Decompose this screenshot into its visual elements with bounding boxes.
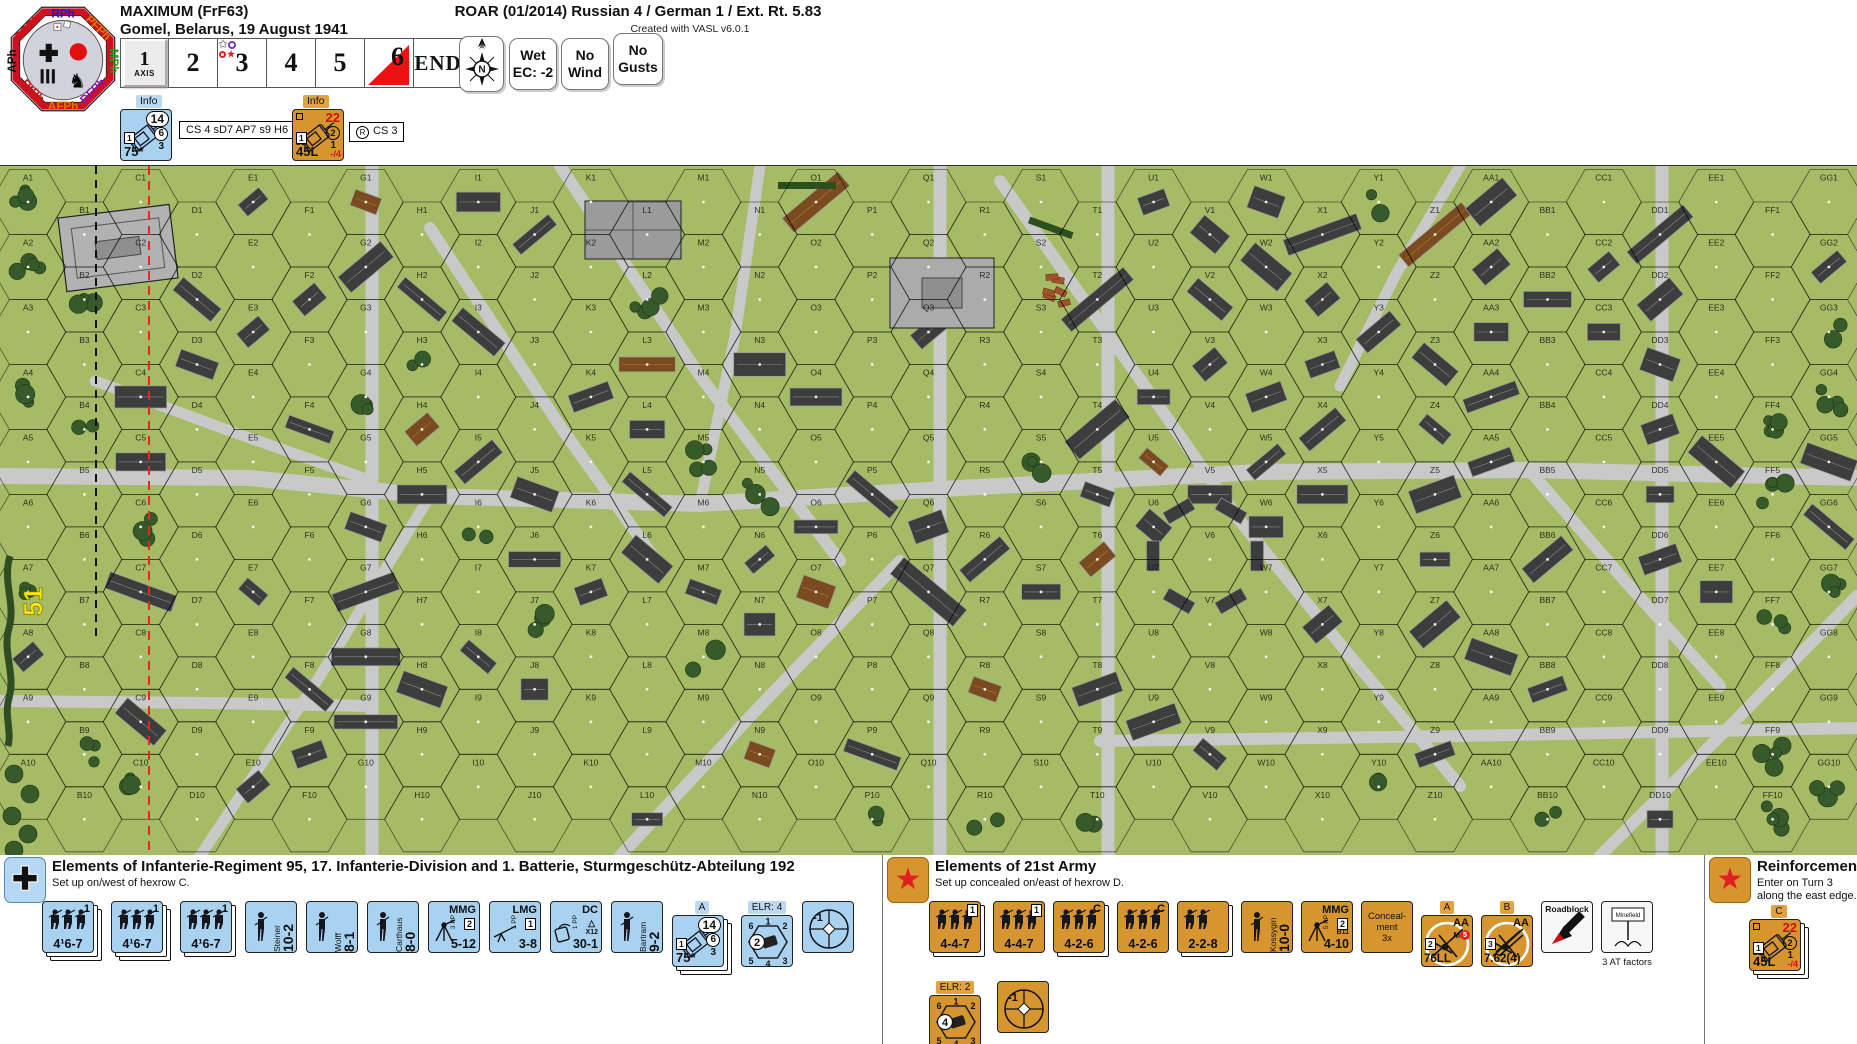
svg-text:I6: I6 <box>475 497 482 507</box>
counter-vehicle[interactable]: 1463175* <box>120 109 172 161</box>
svg-text:R8: R8 <box>979 660 990 670</box>
svg-text:O3: O3 <box>810 303 822 313</box>
svg-text:Q1: Q1 <box>923 173 935 183</box>
svg-text:R6: R6 <box>979 530 990 540</box>
counter-turret[interactable]: 6125434 <box>929 995 981 1044</box>
svg-text:B1: B1 <box>79 205 90 215</box>
svg-text:J7: J7 <box>530 595 539 605</box>
svg-text:FF10: FF10 <box>1763 790 1783 800</box>
svg-text:X5: X5 <box>1317 465 1328 475</box>
svg-text:J3: J3 <box>530 335 539 345</box>
turn-cell-5[interactable]: 5 <box>316 38 365 88</box>
svg-text:K7: K7 <box>586 562 597 572</box>
svg-text:EE3: EE3 <box>1708 303 1724 313</box>
svg-text:B9: B9 <box>79 725 90 735</box>
svg-text:W8: W8 <box>1260 627 1273 637</box>
svg-text:Z3: Z3 <box>1430 335 1440 345</box>
svg-text:V6: V6 <box>1205 530 1216 540</box>
svg-text:G4: G4 <box>360 367 372 377</box>
german-ob-panel: Elements of Infanterie-Regiment 95, 17. … <box>0 855 882 1044</box>
svg-text:S2: S2 <box>1036 238 1047 248</box>
svg-text:GG2: GG2 <box>1820 238 1838 248</box>
svg-text:T1: T1 <box>1092 205 1102 215</box>
svg-text:CC10: CC10 <box>1593 757 1615 767</box>
svg-text:FF9: FF9 <box>1765 725 1780 735</box>
svg-text:R9: R9 <box>979 725 990 735</box>
scenario-location: Gomel, Belarus, 19 August 1941 <box>120 21 348 38</box>
svg-text:51: 51 <box>18 587 48 616</box>
svg-text:H4: H4 <box>417 400 428 410</box>
leader-figure-icon <box>375 911 391 947</box>
svg-text:O8: O8 <box>810 627 822 637</box>
weather-ec-line2: EC: -2 <box>513 64 553 81</box>
counter-squad[interactable]: 14-4-7 <box>993 901 1045 953</box>
svg-text:2: 2 <box>970 1001 975 1011</box>
svg-text:V10: V10 <box>1202 790 1217 800</box>
gusts-button[interactable]: No Gusts <box>613 33 663 85</box>
svg-text:S4: S4 <box>1036 367 1047 377</box>
svg-text:G7: G7 <box>360 562 372 572</box>
svg-text:EE4: EE4 <box>1708 367 1724 377</box>
counter-marker[interactable]: Conceal-ment3x <box>1361 901 1413 953</box>
counter-label: ELR: 2 <box>936 981 975 994</box>
svg-text:V7: V7 <box>1205 595 1216 605</box>
svg-text:Z5: Z5 <box>1430 465 1440 475</box>
turn-cell-2[interactable]: 2 <box>169 38 218 88</box>
svg-text:3: 3 <box>782 956 787 966</box>
svg-text:L6: L6 <box>642 530 652 540</box>
svg-text:L3: L3 <box>642 335 652 345</box>
counter-minefield[interactable]: Minefield <box>1601 901 1653 953</box>
counter-vehicle[interactable]: 2221B11145L-/4 <box>292 109 344 161</box>
gusts-line1: No <box>629 42 648 59</box>
svg-text:L8: L8 <box>642 660 652 670</box>
svg-text:F10: F10 <box>302 790 317 800</box>
svg-text:DD9: DD9 <box>1651 725 1668 735</box>
svg-text:E2: E2 <box>248 238 259 248</box>
svg-text:CC1: CC1 <box>1595 173 1612 183</box>
svg-text:R5: R5 <box>979 465 990 475</box>
counter-gun[interactable]: AAM5276LL <box>1421 915 1473 967</box>
svg-text:B6: B6 <box>79 530 90 540</box>
svg-text:S3: S3 <box>1036 303 1047 313</box>
svg-text:K8: K8 <box>586 627 597 637</box>
svg-text:H2: H2 <box>417 270 428 280</box>
svg-text:E5: E5 <box>248 432 259 442</box>
counter-sw[interactable]: MMG25 PPB114-10 <box>1301 901 1353 953</box>
svg-text:GG8: GG8 <box>1820 627 1838 637</box>
svg-text:N1: N1 <box>754 205 765 215</box>
svg-text:C8: C8 <box>135 627 146 637</box>
svg-text:P7: P7 <box>867 595 878 605</box>
svg-text:E7: E7 <box>248 562 259 572</box>
counter-turret[interactable]: 6125432 <box>741 915 793 967</box>
svg-text:W7: W7 <box>1260 562 1273 572</box>
counter-leader[interactable]: Kossygin10-0 <box>1241 901 1293 953</box>
svg-text:H8: H8 <box>417 660 428 670</box>
svg-text:O1: O1 <box>810 173 822 183</box>
svg-text:U3: U3 <box>1148 303 1159 313</box>
svg-text:FF2: FF2 <box>1765 270 1780 280</box>
svg-text:U1: U1 <box>1148 173 1159 183</box>
svg-text:EE10: EE10 <box>1706 757 1727 767</box>
svg-text:DD1: DD1 <box>1651 205 1668 215</box>
svg-text:L2: L2 <box>642 270 652 280</box>
turn3-reinforcement-markers: ★★ <box>219 40 243 59</box>
svg-text:5: 5 <box>936 1036 941 1044</box>
svg-text:C1: C1 <box>135 173 146 183</box>
svg-text:X2: X2 <box>1317 270 1328 280</box>
svg-text:D10: D10 <box>189 790 205 800</box>
svg-text:EE8: EE8 <box>1708 627 1724 637</box>
svg-text:K10: K10 <box>583 757 598 767</box>
svg-text:F3: F3 <box>305 335 315 345</box>
compass-button[interactable]: N <box>459 36 504 92</box>
counter-squad[interactable]: C4-2-6 <box>1117 901 1169 953</box>
svg-text:T8: T8 <box>1092 660 1102 670</box>
turn-cell-6[interactable]: 6 <box>365 38 414 88</box>
svg-text:N2: N2 <box>754 270 765 280</box>
svg-text:V5: V5 <box>1205 465 1216 475</box>
svg-text:FF4: FF4 <box>1765 400 1780 410</box>
svg-text:DD10: DD10 <box>1649 790 1671 800</box>
svg-text:2: 2 <box>754 937 760 949</box>
reinforcements-line1: Enter on Turn 3 <box>1757 877 1833 889</box>
counter-leader[interactable]: Wolff8-1 <box>306 901 358 953</box>
german-vehicle-note: CS 4 sD7 AP7 s9 H6 <box>179 121 295 139</box>
svg-text:BB3: BB3 <box>1539 335 1555 345</box>
counter-sniper[interactable]: -1 <box>802 901 854 953</box>
svg-text:D3: D3 <box>192 335 203 345</box>
svg-text:I9: I9 <box>475 692 482 702</box>
svg-text:M9: M9 <box>697 692 709 702</box>
svg-text:Q4: Q4 <box>923 367 935 377</box>
counter-label: B <box>1500 901 1515 914</box>
svg-text:M6: M6 <box>697 497 709 507</box>
svg-text:R3: R3 <box>979 335 990 345</box>
svg-text:FF5: FF5 <box>1765 465 1780 475</box>
turn-cell-1[interactable]: 1AXIS <box>120 38 169 88</box>
svg-text:F4: F4 <box>305 400 315 410</box>
svg-text:♞: ♞ <box>69 72 86 93</box>
svg-text:BB1: BB1 <box>1539 205 1555 215</box>
svg-text:CC2: CC2 <box>1595 238 1612 248</box>
svg-text:H3: H3 <box>417 335 428 345</box>
phase-wheel[interactable]: ♞RPhPFPhMPhDFPhAFPhRtPhAPhCCPh <box>6 2 120 116</box>
svg-text:BB6: BB6 <box>1539 530 1555 540</box>
svg-text:N8: N8 <box>754 660 765 670</box>
svg-text:U8: U8 <box>1148 627 1159 637</box>
svg-text:Y9: Y9 <box>1373 692 1384 702</box>
purple-ring-icon <box>228 41 236 49</box>
svg-text:J6: J6 <box>530 530 539 540</box>
svg-text:N7: N7 <box>754 595 765 605</box>
svg-text:Y5: Y5 <box>1373 432 1384 442</box>
counter-leader[interactable]: Bartram9-2 <box>611 901 663 953</box>
roar-record: ROAR (01/2014) Russian 4 / German 1 / Ex… <box>358 3 918 20</box>
svg-text:J8: J8 <box>530 660 539 670</box>
svg-text:D2: D2 <box>192 270 203 280</box>
counter-squad[interactable]: 14¹6-7 <box>111 901 163 953</box>
svg-text:BB2: BB2 <box>1539 270 1555 280</box>
svg-text:X1: X1 <box>1317 205 1328 215</box>
reinforcements-counter-row: C2221B11145L-/4 <box>1749 905 1809 979</box>
svg-text:DD2: DD2 <box>1651 270 1668 280</box>
svg-text:AA3: AA3 <box>1483 303 1499 313</box>
svg-text:EE1: EE1 <box>1708 173 1724 183</box>
svg-text:W3: W3 <box>1260 303 1273 313</box>
svg-text:A10: A10 <box>21 757 36 767</box>
counter-squad[interactable]: 14¹6-7 <box>42 901 94 953</box>
hex-map-svg[interactable]: A1A2A3A4A5A6A7A8A9A10B1B2B3B4B5B6B7B8B9B… <box>0 166 1857 856</box>
svg-text:F9: F9 <box>305 725 315 735</box>
svg-text:I7: I7 <box>475 562 482 572</box>
svg-text:N5: N5 <box>754 465 765 475</box>
svg-text:G5: G5 <box>360 432 372 442</box>
counter-sniper[interactable]: -1 <box>997 981 1049 1033</box>
svg-text:4: 4 <box>942 1017 949 1029</box>
svg-text:Q3: Q3 <box>923 303 935 313</box>
svg-text:Z6: Z6 <box>1430 530 1440 540</box>
svg-text:V4: V4 <box>1205 400 1216 410</box>
svg-text:B8: B8 <box>79 660 90 670</box>
svg-text:T3: T3 <box>1092 335 1102 345</box>
reinforcements-title: Reinforcements <box>1757 858 1857 875</box>
svg-text:Z8: Z8 <box>1430 660 1440 670</box>
current-turn-triangle <box>365 39 412 87</box>
svg-text:Q6: Q6 <box>923 497 935 507</box>
svg-text:6: 6 <box>936 1001 941 1011</box>
svg-text:E9: E9 <box>248 692 259 702</box>
svg-text:D7: D7 <box>192 595 203 605</box>
leader-figure-icon <box>253 911 269 947</box>
svg-text:Z4: Z4 <box>1430 400 1440 410</box>
svg-text:A1: A1 <box>23 173 34 183</box>
svg-text:3: 3 <box>970 1036 975 1044</box>
svg-text:S8: S8 <box>1036 627 1047 637</box>
svg-text:N10: N10 <box>752 790 768 800</box>
svg-text:N4: N4 <box>754 400 765 410</box>
svg-text:H9: H9 <box>417 725 428 735</box>
counter-squad[interactable]: 14¹6-7 <box>180 901 232 953</box>
svg-text:O5: O5 <box>810 432 822 442</box>
svg-text:Y8: Y8 <box>1373 627 1384 637</box>
svg-text:Y10: Y10 <box>1371 757 1386 767</box>
svg-text:W5: W5 <box>1260 432 1273 442</box>
svg-text:A4: A4 <box>23 367 34 377</box>
svg-text:J9: J9 <box>530 725 539 735</box>
svg-text:BB10: BB10 <box>1537 790 1558 800</box>
svg-text:U7: U7 <box>1148 562 1159 572</box>
counter-roadblock[interactable]: Roadblock <box>1541 901 1593 953</box>
leader-figure-icon <box>1249 911 1265 947</box>
svg-text:EE7: EE7 <box>1708 562 1724 572</box>
svg-text:R1: R1 <box>979 205 990 215</box>
counter-leader[interactable]: Carthaus8-0 <box>367 901 419 953</box>
svg-text:C6: C6 <box>135 497 146 507</box>
svg-text:C4: C4 <box>135 367 146 377</box>
svg-text:O7: O7 <box>810 562 822 572</box>
svg-text:GG10: GG10 <box>1818 757 1841 767</box>
svg-text:L1: L1 <box>642 205 652 215</box>
svg-text:P8: P8 <box>867 660 878 670</box>
svg-text:Q2: Q2 <box>923 238 935 248</box>
svg-text:A7: A7 <box>23 562 34 572</box>
svg-text:T6: T6 <box>1092 530 1102 540</box>
leader-figure-icon <box>619 911 635 947</box>
svg-text:E3: E3 <box>248 303 259 313</box>
svg-text:AA1: AA1 <box>1483 173 1499 183</box>
svg-text:G10: G10 <box>358 757 374 767</box>
german-counter-row: 14¹6-714¹6-714¹6-7Steiner10-2Wolff8-1Car… <box>42 901 854 975</box>
game-map[interactable]: A1A2A3A4A5A6A7A8A9A10B1B2B3B4B5B6B7B8B9B… <box>0 165 1857 855</box>
svg-text:O2: O2 <box>810 238 822 248</box>
counter-squad[interactable]: 2-2-8 <box>1177 901 1229 953</box>
svg-text:D6: D6 <box>192 530 203 540</box>
svg-text:H7: H7 <box>417 595 428 605</box>
svg-text:S7: S7 <box>1036 562 1047 572</box>
svg-text:R7: R7 <box>979 595 990 605</box>
svg-text:AA6: AA6 <box>1483 497 1499 507</box>
counter-sw[interactable]: LMG11 PP3-8 <box>489 901 541 953</box>
svg-text:T4: T4 <box>1092 400 1102 410</box>
svg-text:C3: C3 <box>135 303 146 313</box>
svg-text:AA5: AA5 <box>1483 432 1499 442</box>
svg-text:J2: J2 <box>530 270 539 280</box>
svg-text:T5: T5 <box>1092 465 1102 475</box>
svg-text:V1: V1 <box>1205 205 1216 215</box>
russian-star-icon: ★ <box>887 857 929 903</box>
svg-text:CC6: CC6 <box>1595 497 1612 507</box>
svg-text:BB9: BB9 <box>1539 725 1555 735</box>
turn-cell-end[interactable]: END <box>414 38 463 88</box>
svg-text:J1: J1 <box>530 205 539 215</box>
counter-squad[interactable]: C4-2-6 <box>1053 901 1105 953</box>
counter-sw[interactable]: DC△1 PPX1230-1 <box>550 901 602 953</box>
svg-text:BB5: BB5 <box>1539 465 1555 475</box>
svg-text:C10: C10 <box>133 757 149 767</box>
turn-cell-3[interactable]: ★★3 <box>218 38 267 88</box>
svg-text:B10: B10 <box>77 790 92 800</box>
counter-vehicle[interactable]: 2221B11145L-/4 <box>1749 919 1801 971</box>
svg-text:G1: G1 <box>360 173 372 183</box>
svg-text:4: 4 <box>765 959 770 968</box>
svg-text:CC4: CC4 <box>1595 367 1612 377</box>
svg-text:A3: A3 <box>23 303 34 313</box>
svg-text:N: N <box>478 65 485 76</box>
svg-text:1: 1 <box>953 997 958 1007</box>
counter-sw[interactable]: MMG23 PP5-12 <box>428 901 480 953</box>
svg-text:BB7: BB7 <box>1539 595 1555 605</box>
reinforcements-panel: ★ Reinforcements Enter on Turn 3 along t… <box>1704 855 1857 1044</box>
counter-label: A <box>695 901 710 914</box>
counter-vehicle[interactable]: 1463175* <box>672 915 724 967</box>
svg-text:DD6: DD6 <box>1651 530 1668 540</box>
wind-button[interactable]: No Wind <box>561 38 609 90</box>
svg-text:DD4: DD4 <box>1651 400 1668 410</box>
svg-text:P2: P2 <box>867 270 878 280</box>
svg-text:I5: I5 <box>475 432 482 442</box>
svg-text:H5: H5 <box>417 465 428 475</box>
svg-text:Q7: Q7 <box>923 562 935 572</box>
svg-text:P6: P6 <box>867 530 878 540</box>
svg-text:G6: G6 <box>360 497 372 507</box>
counter-gun[interactable]: AA37.62(4) <box>1481 915 1533 967</box>
svg-text:A2: A2 <box>23 238 34 248</box>
turn-cell-4[interactable]: 4 <box>267 38 316 88</box>
svg-text:B7: B7 <box>79 595 90 605</box>
svg-text:GG4: GG4 <box>1820 367 1838 377</box>
svg-text:X4: X4 <box>1317 400 1328 410</box>
svg-text:Y2: Y2 <box>1373 238 1384 248</box>
svg-text:X6: X6 <box>1317 530 1328 540</box>
svg-text:DD7: DD7 <box>1651 595 1668 605</box>
russian-ob-title: Elements of 21st Army <box>935 858 1096 875</box>
svg-text:U4: U4 <box>1148 367 1159 377</box>
svg-text:1: 1 <box>765 917 770 927</box>
svg-text:F6: F6 <box>305 530 315 540</box>
svg-text:Minefield: Minefield <box>1616 912 1641 919</box>
svg-text:Q8: Q8 <box>923 627 935 637</box>
svg-text:GG1: GG1 <box>1820 173 1838 183</box>
svg-text:M10: M10 <box>695 757 712 767</box>
svg-text:E10: E10 <box>246 757 261 767</box>
svg-text:C2: C2 <box>135 238 146 248</box>
wind-line1: No <box>576 47 595 64</box>
svg-text:Y6: Y6 <box>1373 497 1384 507</box>
svg-text:Z9: Z9 <box>1430 725 1440 735</box>
svg-text:E6: E6 <box>248 497 259 507</box>
svg-text:EE2: EE2 <box>1708 238 1724 248</box>
axis-turn-marker[interactable]: 1AXIS <box>123 39 167 87</box>
svg-text:P5: P5 <box>867 465 878 475</box>
svg-text:GG6: GG6 <box>1820 497 1838 507</box>
leader-figure-icon <box>314 911 330 947</box>
svg-text:N6: N6 <box>754 530 765 540</box>
german-info-counter-slot: 1463175* <box>120 109 172 161</box>
svg-text:RPh: RPh <box>51 7 74 20</box>
svg-text:X7: X7 <box>1317 595 1328 605</box>
svg-text:Y4: Y4 <box>1373 367 1384 377</box>
counter-note: 3 AT factors <box>1602 957 1652 968</box>
svg-text:V3: V3 <box>1205 335 1216 345</box>
svg-text:Q5: Q5 <box>923 432 935 442</box>
svg-text:P4: P4 <box>867 400 878 410</box>
reinforcements-star-icon: ★ <box>1709 857 1751 903</box>
weather-ec-button[interactable]: Wet EC: -2 <box>509 38 557 90</box>
svg-text:Z2: Z2 <box>1430 270 1440 280</box>
svg-text:X3: X3 <box>1317 335 1328 345</box>
svg-text:I10: I10 <box>472 757 484 767</box>
svg-text:L10: L10 <box>640 790 654 800</box>
svg-text:EE5: EE5 <box>1708 432 1724 442</box>
vasl-window: ♞RPhPFPhMPhDFPhAFPhRtPhAPhCCPh MAXIMUM (… <box>0 0 1857 1044</box>
svg-text:J4: J4 <box>530 400 539 410</box>
svg-text:S6: S6 <box>1036 497 1047 507</box>
svg-text:M2: M2 <box>697 238 709 248</box>
svg-text:2: 2 <box>782 921 787 931</box>
svg-text:-1: -1 <box>813 912 823 924</box>
svg-text:N3: N3 <box>754 335 765 345</box>
counter-squad[interactable]: 14-4-7 <box>929 901 981 953</box>
russian-ob-setup: Set up concealed on/east of hexrow D. <box>935 877 1124 889</box>
svg-text:V8: V8 <box>1205 660 1216 670</box>
svg-text:L4: L4 <box>642 400 652 410</box>
svg-text:EE9: EE9 <box>1708 692 1724 702</box>
svg-text:V9: V9 <box>1205 725 1216 735</box>
counter-leader[interactable]: Steiner10-2 <box>245 901 297 953</box>
svg-text:F7: F7 <box>305 595 315 605</box>
